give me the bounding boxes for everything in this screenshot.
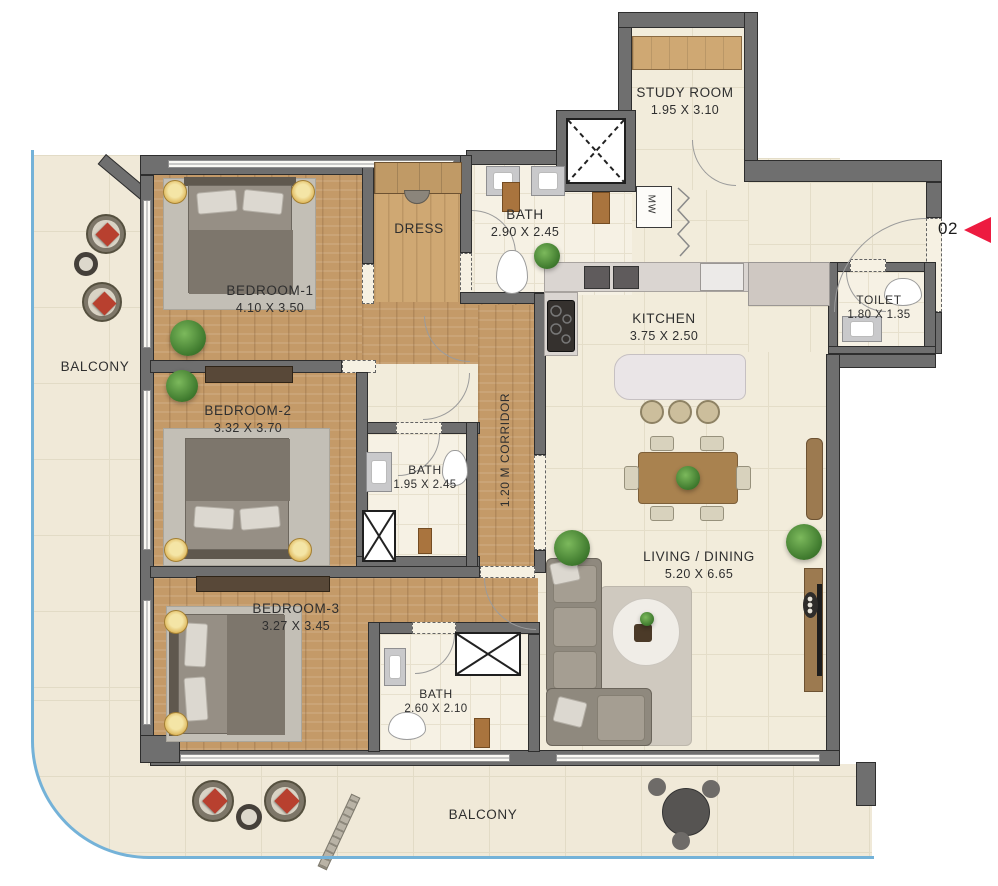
room-dim: 1.95 X 3.10 [636, 102, 733, 119]
br3-door-opening [480, 566, 535, 578]
bedroom1-bed [188, 185, 292, 293]
dining-chair [736, 466, 751, 490]
plant [554, 530, 590, 566]
plant [170, 320, 206, 356]
wall-top-bath [466, 150, 568, 165]
window-left-1 [143, 200, 151, 348]
room-name: BATH [404, 686, 467, 702]
bedroom2-headboard [181, 550, 293, 559]
bar-stool [640, 400, 664, 424]
sink [531, 166, 565, 196]
bedroom2-bed [185, 438, 289, 550]
toilet-fixture [496, 250, 528, 294]
bath3-door-opening [412, 622, 456, 634]
kitchen-label: KITCHEN 3.75 X 2.50 [630, 310, 698, 345]
wall-corridor-right-b [534, 550, 546, 573]
unit-arrow-icon [964, 217, 991, 243]
corridor-label: 1.20 M CORRIDOR [497, 393, 513, 507]
pillow [552, 696, 587, 728]
coffee-table-plant [640, 612, 654, 626]
dining-chair [700, 436, 724, 451]
console-table [806, 438, 823, 520]
towel-rail [418, 528, 432, 554]
wall-top-right [744, 160, 942, 182]
room-name: 1.20 M CORRIDOR [497, 393, 513, 507]
wall-study-right [744, 12, 758, 164]
pillow [196, 189, 238, 214]
table-top [79, 257, 93, 271]
duct-x-icon [364, 512, 394, 560]
folding-door [672, 186, 694, 258]
bedside-lamp [291, 180, 315, 204]
balcony-chair [192, 780, 234, 822]
room-dim: 3.32 X 3.70 [204, 420, 291, 437]
decor-dots-icon [803, 592, 818, 618]
wall-dress-left [362, 162, 374, 264]
plant [786, 524, 822, 560]
room-name: BEDROOM-2 [204, 402, 291, 420]
pillow [183, 676, 208, 721]
room-dim: 1.95 X 2.45 [393, 478, 456, 494]
room-name: KITCHEN [630, 310, 698, 328]
outside-mask [840, 690, 915, 764]
bar-stool [668, 400, 692, 424]
room-name: BALCONY [449, 806, 518, 824]
bath-master-door-opening [460, 253, 472, 295]
microwave: MW [636, 186, 672, 228]
room-name: BATH [491, 206, 559, 224]
room-dim: 2.60 X 2.10 [404, 702, 467, 718]
bedroom1-label: BEDROOM-1 4.10 X 3.50 [226, 282, 313, 317]
table-centerpiece [676, 466, 700, 490]
outdoor-chair [648, 778, 666, 796]
room-dim: 3.27 X 3.45 [252, 618, 339, 635]
room-name: TOILET [847, 292, 910, 308]
elevator-x-icon [568, 120, 624, 182]
dining-chair [624, 466, 639, 490]
kitchen-island [614, 354, 746, 400]
balcony-side-table [236, 804, 262, 830]
wall-study-top [618, 12, 758, 28]
room-name: DRESS [394, 220, 444, 238]
window-bottom-1 [180, 754, 510, 762]
balcony-chair [82, 282, 122, 322]
outdoor-chair [672, 832, 690, 850]
room-name: BALCONY [61, 358, 130, 376]
bath2-door-opening [396, 422, 442, 434]
balcony-chair [264, 780, 306, 822]
table-top [241, 809, 257, 825]
duct-shaft-bath3 [455, 632, 521, 676]
study-desk [632, 36, 742, 70]
pillow [239, 505, 281, 530]
bedside-lamp [164, 712, 188, 736]
burners-icon [548, 301, 574, 351]
room-name: BEDROOM-3 [252, 600, 339, 618]
room-dim: 1.80 X 1.35 [847, 308, 910, 324]
bedside-lamp [163, 180, 187, 204]
bedside-lamp [164, 610, 188, 634]
duct-x-icon [457, 634, 519, 674]
wall-stub-below-toilet [826, 354, 936, 368]
sofa-chaise [546, 688, 652, 746]
decor-bowl [803, 592, 818, 618]
bedside-lamp [164, 538, 188, 562]
sink [384, 648, 406, 686]
bedroom3-label: BEDROOM-3 3.27 X 3.45 [252, 600, 339, 635]
window-left-3 [143, 600, 151, 725]
outdoor-chair [702, 780, 720, 798]
kitchen-sink [584, 266, 610, 289]
cooktop [547, 300, 575, 352]
room-name: BEDROOM-1 [226, 282, 313, 300]
sofa-cushion [597, 695, 645, 741]
room-dim: 4.10 X 3.50 [226, 300, 313, 317]
wall-right-upper [926, 182, 942, 218]
wall-bath2-right [466, 422, 478, 568]
fridge [700, 263, 744, 291]
coffee-table-tray [634, 624, 652, 642]
balcony-bottom-label: BALCONY [449, 806, 518, 824]
balcony-chair [86, 214, 126, 254]
pillow [242, 189, 284, 215]
dining-chair [700, 506, 724, 521]
bedroom2-dresser [205, 366, 293, 383]
wall-study-left [618, 25, 632, 122]
sink [366, 452, 392, 492]
corridor-opening [534, 455, 546, 550]
room-name: BATH [393, 462, 456, 478]
pillow [193, 506, 234, 531]
room-dim: 2.90 X 2.45 [491, 224, 559, 241]
bath2-label: BATH 1.95 X 2.45 [393, 462, 456, 494]
duct-shaft-bath2 [362, 510, 396, 562]
bedroom2-label: BEDROOM-2 3.32 X 3.70 [204, 402, 291, 437]
pillow [184, 622, 208, 667]
wall-bath3-left [368, 622, 380, 752]
bedroom3-dresser [196, 576, 330, 592]
bar-stool [696, 400, 720, 424]
room-name: STUDY ROOM [636, 84, 733, 102]
wall-toilet-bottom [828, 346, 936, 354]
toilet-label: TOILET 1.80 X 1.35 [847, 292, 910, 324]
room-name: LIVING / DINING [643, 548, 755, 566]
bath3-label: BATH 2.60 X 2.10 [404, 686, 467, 718]
window-left-2 [143, 390, 151, 550]
kitchen-sink [613, 266, 639, 289]
living-dining-label: LIVING / DINING 5.20 X 6.65 [643, 548, 755, 583]
water-heater [592, 192, 610, 224]
window-bottom-2 [556, 754, 820, 762]
plant [534, 243, 560, 269]
dress-door-opening [362, 264, 374, 304]
plant [166, 370, 198, 402]
balcony-left-label: BALCONY [61, 358, 130, 376]
blanket [186, 439, 290, 501]
balcony-side-table [74, 252, 98, 276]
bedside-lamp [288, 538, 312, 562]
outdoor-table [662, 788, 710, 836]
wall-balcony-end-cap [856, 762, 876, 806]
bath-master-label: BATH 2.90 X 2.45 [491, 206, 559, 241]
unit-number: 02 [938, 219, 958, 239]
floor-plan: MW [0, 0, 998, 886]
floor-lamp [474, 718, 490, 748]
microwave-label: MW [645, 195, 656, 215]
room-dim: 5.20 X 6.65 [643, 566, 755, 583]
wall-bath-bottom [460, 292, 544, 304]
sofa [546, 558, 602, 694]
dress-label: DRESS [394, 220, 444, 238]
wall-corridor-low [528, 634, 540, 752]
sofa-cushion [553, 651, 597, 689]
wall-right-living [826, 354, 840, 766]
dining-chair [650, 436, 674, 451]
study-room-label: STUDY ROOM 1.95 X 3.10 [636, 84, 733, 119]
dining-chair [650, 506, 674, 521]
elevator-shaft [566, 118, 626, 184]
room-dim: 3.75 X 2.50 [630, 328, 698, 345]
sofa-cushion [553, 607, 597, 647]
kitchen-tall-unit [748, 262, 830, 306]
